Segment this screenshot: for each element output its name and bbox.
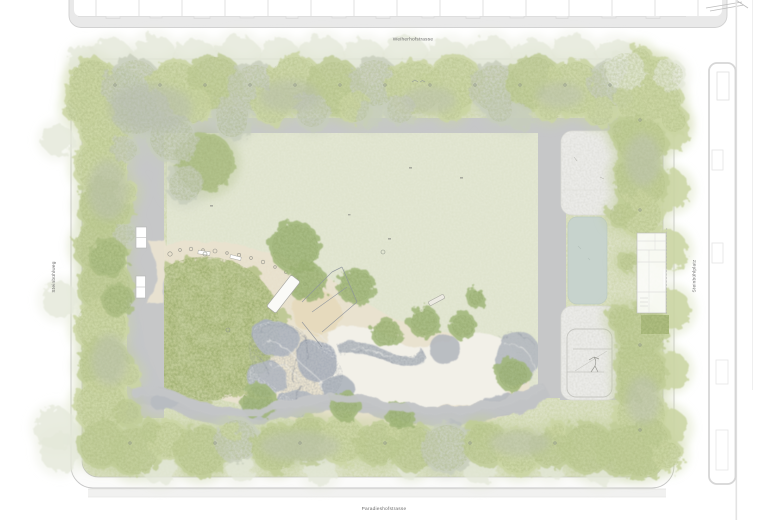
svg-text:Steinbühlplatz: Steinbühlplatz <box>692 259 698 292</box>
svg-text:Steinbühlweg: Steinbühlweg <box>51 261 57 292</box>
svg-text:Paradieshofstrasse: Paradieshofstrasse <box>362 506 407 512</box>
svg-text:Weiherhofstrasse: Weiherhofstrasse <box>393 37 434 43</box>
